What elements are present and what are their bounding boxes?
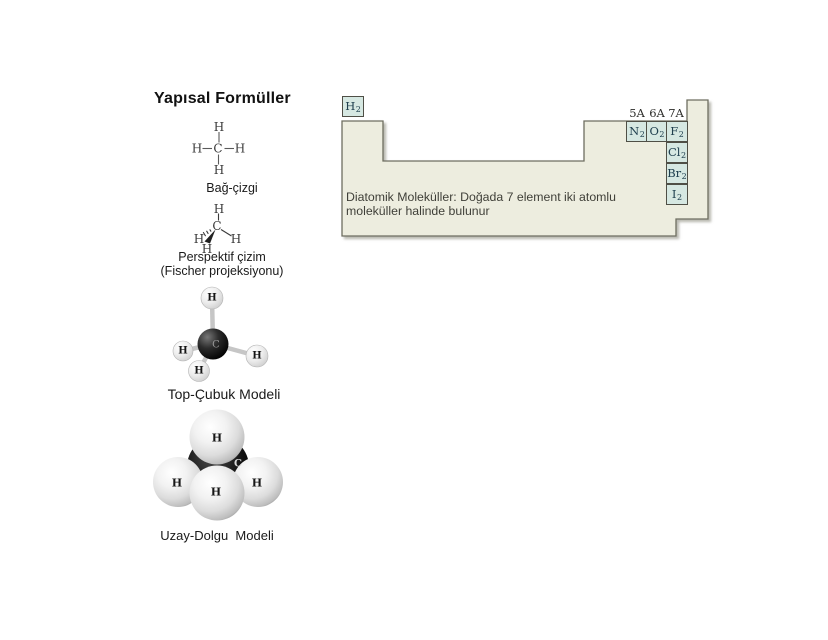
- space-fill-label: Uzay-Dolgu Modeli: [132, 528, 302, 543]
- atom-h-front: H: [211, 486, 221, 499]
- atom-h-top: H: [214, 202, 224, 216]
- element-symbol: Cl: [668, 147, 680, 159]
- element-symbol: O: [649, 126, 658, 138]
- atom-h-left: H: [178, 346, 187, 357]
- element-subscript: 2: [682, 173, 687, 181]
- diatomic-caption-line1: Diatomik Moleküller: Doğada 7 element ik…: [346, 191, 646, 205]
- diatomic-caption-line2: moleküller halinde bulunur: [346, 205, 646, 219]
- element-symbol: F: [670, 126, 678, 138]
- atom-h-top: H: [214, 120, 224, 134]
- atom-h-top: H: [207, 293, 216, 304]
- element-cell-i2: I2: [666, 184, 688, 205]
- atom-h-left: H: [172, 477, 182, 490]
- atom-h-right: H: [252, 477, 262, 490]
- element-cell-cl2: Cl2: [666, 142, 688, 163]
- element-subscript: 2: [356, 106, 361, 114]
- element-symbol: Br: [667, 168, 681, 180]
- perspective-label-line1: Perspektif çizim: [137, 251, 307, 265]
- perspective-label: Perspektif çizim (Fischer projeksiyonu): [137, 251, 307, 278]
- group-label-7a: 7A: [665, 106, 687, 120]
- element-subscript: 2: [679, 131, 684, 139]
- atom-h-top: H: [212, 432, 222, 445]
- atom-h-right: H: [235, 142, 245, 156]
- element-symbol: I: [672, 189, 677, 201]
- element-subscript: 2: [659, 131, 664, 139]
- element-subscript: 2: [677, 194, 682, 202]
- atom-c-center: C: [212, 219, 221, 233]
- element-cell-br2: Br2: [666, 163, 688, 184]
- atom-h-bottom: H: [194, 366, 203, 377]
- bond-dashes: [203, 229, 211, 236]
- atom-h-right: H: [231, 232, 241, 246]
- element-cell-f2: F2: [666, 121, 688, 142]
- atom-c-center: C: [212, 340, 220, 351]
- element-cell-o2: O2: [646, 121, 668, 142]
- element-cell-n2: N2: [626, 121, 648, 142]
- element-cell-h2: H2: [342, 96, 364, 117]
- perspective-label-line2: (Fischer projeksiyonu): [137, 265, 307, 279]
- element-symbol: H: [345, 101, 355, 113]
- element-subscript: 2: [681, 152, 686, 160]
- atom-c-center: C: [213, 142, 222, 156]
- atom-h-left: H: [192, 142, 202, 156]
- element-subscript: 2: [640, 131, 645, 139]
- space-fill-figure: H H H H C: [148, 408, 288, 526]
- bond-line-figure: H H C H H: [185, 117, 255, 179]
- atom-h-bottom: H: [214, 163, 224, 177]
- diatomic-caption: Diatomik Moleküller: Doğada 7 element ik…: [346, 191, 646, 218]
- ball-stick-figure: H H H H C: [158, 280, 270, 382]
- slide: Yapısal Formüller H H C H H Bağ-çizgi H: [0, 0, 828, 640]
- group-label-5a: 5A: [626, 106, 648, 120]
- ball-stick-label: Top-Çubuk Modeli: [139, 386, 309, 402]
- page-title: Yapısal Formüller: [154, 90, 291, 108]
- bond-line-label: Bağ-çizgi: [147, 181, 317, 195]
- atom-h-right: H: [252, 351, 261, 362]
- atom-c-center: C: [234, 459, 242, 470]
- element-symbol: N: [629, 126, 639, 138]
